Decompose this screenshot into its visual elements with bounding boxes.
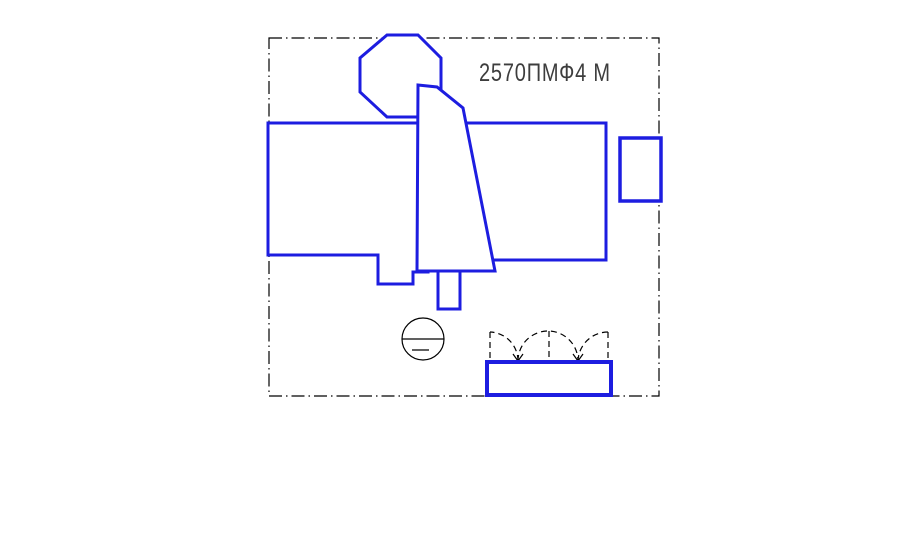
drawing-canvas[interactable]: 2570ПМФ4 М bbox=[0, 0, 906, 552]
accessory-table-outline bbox=[487, 362, 611, 395]
left-bed-outline bbox=[268, 123, 428, 284]
swing-arc-right bbox=[578, 332, 608, 361]
door-swing-marks bbox=[490, 331, 608, 361]
operator-position-symbol bbox=[402, 318, 444, 360]
swing-arc-middle bbox=[518, 331, 578, 361]
swing-arc-left bbox=[490, 332, 518, 361]
pendant-outline bbox=[438, 271, 460, 309]
machine-model-label: 2570ПМФ4 М bbox=[479, 58, 611, 88]
side-cabinet-outline bbox=[620, 138, 661, 201]
machine-layout-plan bbox=[0, 0, 906, 552]
